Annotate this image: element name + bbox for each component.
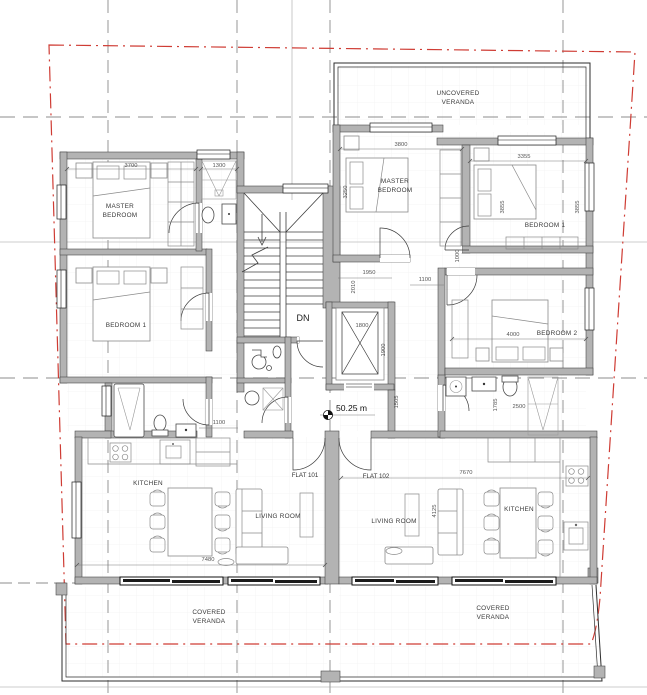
window [57,185,66,219]
dim-3355: 3355 [518,154,531,160]
dim-7480: 7480 [202,557,215,563]
sliding-door [120,577,223,585]
dim-2500: 2500 [513,404,526,410]
dim-2010: 2010 [351,281,357,294]
room-label-kitchen-left: KITCHEN [133,480,163,487]
dim-1505: 1505 [394,396,400,409]
dim-3250: 3250 [343,186,349,199]
room-label-uncovered-veranda-2: VERANDA [442,99,475,106]
dim-3855-a: 3855 [500,201,506,214]
room-label-living-left: LIVING ROOM [255,513,300,520]
room-label-bedroom2: BEDROOM 2 [537,330,578,337]
room-label-master-right-2: BEDROOM [378,187,413,194]
room-label-kitchen-right: KITCHEN [504,506,534,513]
dim-3800: 3800 [395,142,408,148]
floor-plan-canvas: 50.25 m UNCOVERED VERANDA MASTER BEDROOM… [0,0,647,695]
stair-direction-label: DN [297,313,310,323]
window [57,270,66,308]
sliding-door [228,577,320,585]
dim-1100-right: 1100 [419,277,431,283]
window [72,482,81,538]
accessible-wc [252,346,281,371]
room-label-living-right: LIVING ROOM [371,518,416,525]
staircase [242,193,323,337]
elevator [336,308,384,391]
window [197,150,230,159]
dim-1100-left: 1100 [213,420,225,426]
room-label-master-left: MASTER [106,203,134,210]
room-label-master-right: MASTER [381,178,409,185]
dim-1950: 1950 [363,270,376,276]
dim-1785: 1785 [493,399,499,412]
dim-4125: 4125 [432,505,438,518]
flat-101-label: FLAT 101 [292,472,319,479]
dim-3700: 3700 [125,163,138,169]
sliding-door [352,577,438,585]
dim-7670: 7670 [460,470,473,476]
room-label-covered-veranda-left: COVERED [192,609,225,616]
room-label-bedroom1-right: BEDROOM 1 [525,222,566,229]
sliding-door [452,577,556,585]
floor-plan-drawing: 50.25 m UNCOVERED VERANDA MASTER BEDROOM… [0,0,647,695]
window [585,163,594,211]
dim-1900: 1900 [381,344,387,357]
dim-1800: 1800 [356,323,369,329]
room-label-bedroom1-left: BEDROOM 1 [106,322,147,329]
room-label-covered-veranda-left-2: VERANDA [193,618,226,625]
dim-1300: 1300 [213,163,226,169]
dim-3855-b: 3855 [575,201,581,214]
window [283,184,328,193]
room-label-uncovered-veranda: UNCOVERED [436,90,479,97]
flat-102-label: FLAT 102 [363,473,390,480]
window [498,136,556,145]
room-label-covered-veranda-right-2: VERANDA [477,614,510,621]
window [370,123,432,132]
room-label-covered-veranda-right: COVERED [476,605,509,612]
room-label-master-left-2: BEDROOM [103,212,138,219]
dim-4000: 4000 [507,332,520,338]
dim-1000: 1000 [455,250,461,263]
window [102,386,111,416]
level-value: 50.25 m [336,403,367,413]
window [585,288,594,330]
